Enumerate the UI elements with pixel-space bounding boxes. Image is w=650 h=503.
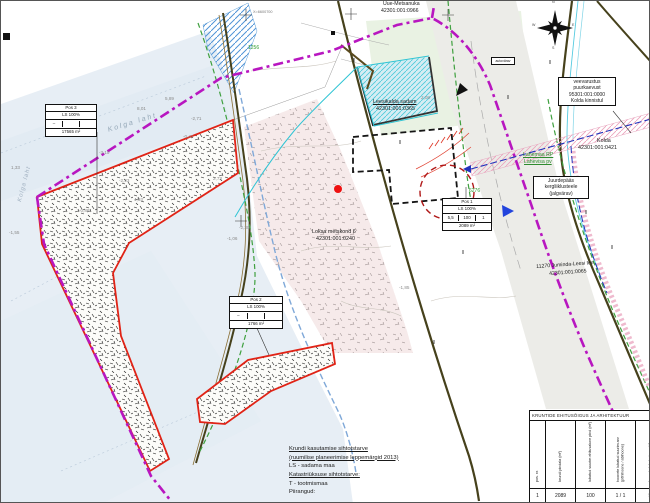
label-veevarustus: veevarustus puurkaevust 95301:001:0000 K… — [558, 77, 616, 106]
plot-info-cell: 17565 m² — [46, 128, 96, 135]
label-autovarav-text: autovärav — [493, 59, 513, 63]
plot-info-cell: LS 100% — [443, 205, 491, 212]
plot-info-cell: – — [46, 121, 62, 127]
table-cell: 2089 — [546, 489, 576, 503]
plot-info-cell — [62, 121, 79, 127]
plot-info-box: Pos 1LS 100%5,510012089 m² — [442, 198, 492, 231]
plot-info-box: Pos 2LS 100%–1766 m² — [229, 296, 283, 329]
label-autovarav: autovärav — [491, 57, 515, 65]
plot-info-cell — [264, 313, 282, 319]
plot-info-cell: 5,51001 — [443, 213, 491, 222]
plot-info-cell: 5,5 — [443, 215, 458, 221]
plot-info-cell: – — [230, 313, 247, 319]
plot-info-cell: – — [230, 311, 282, 320]
legend-line: LS - sadama maa — [289, 462, 399, 471]
legend-line: Krundi kasutamise sihtotstarve — [289, 445, 399, 454]
legend-line: Katastriüksuse sihtotstarve: — [289, 471, 399, 480]
plot-info-cell: LS 100% — [46, 111, 96, 118]
table-column-header: lubatud suurim ehitusalune pind (m²) — [576, 421, 606, 489]
detail-plan-map: Uue-Metsanuka42301:001:0966Leesikalda sa… — [0, 0, 650, 503]
plot-info-cell: – — [46, 119, 96, 128]
plot-info-cell: 1766 m² — [230, 320, 282, 327]
point-marker — [334, 185, 342, 193]
plot-info-cell: 2089 m² — [443, 222, 491, 229]
legend-line: Piirangud: — [289, 488, 399, 497]
table-cell: 100 — [576, 489, 606, 503]
table-column-header: pos. nr. — [530, 421, 546, 489]
label-line: (jalgvärav) — [535, 191, 587, 197]
table-grid: pos. nr.krundi pindala (m²)lubatud suuri… — [529, 420, 650, 503]
plot-info-cell — [247, 313, 265, 319]
table-row: 120891001 / 15,5 — [530, 489, 650, 503]
label-line: Kolda kinnistul — [560, 98, 614, 104]
legend-block: Krundi kasutamise sihtotstarve(ruumilise… — [289, 445, 399, 497]
legend-line: (ruumilise planeerimise leppemärgid 2013… — [289, 454, 399, 463]
table-cell: 1 / 1 — [606, 489, 636, 503]
plot-info-cell: LS 100% — [230, 303, 282, 310]
table-column-header: krundi pindala (m²) — [546, 421, 576, 489]
table-title: KRUNTIDE EHITUSÕIGUS JA ARHITEKTUUR — [529, 410, 650, 420]
plot-info-cell: 100 — [458, 215, 474, 221]
plot-info-cell: 1 — [475, 215, 491, 221]
building-rights-table: KRUNTIDE EHITUSÕIGUS JA ARHITEKTUUR pos.… — [529, 410, 650, 503]
table-column-header: hoonete lubatud suurim arv (põhihoone / … — [606, 421, 636, 489]
table-column-header: hoonete lubatud max kõrgus maapinnast (m… — [636, 421, 650, 489]
table-cell: 5,5 — [636, 489, 650, 503]
legend-line: T - tootmismaa — [289, 480, 399, 489]
label-juurdepaas: Juurdepääs kergliiklusteele (jalgvärav) — [533, 176, 589, 199]
table-cell: 1 — [530, 489, 546, 503]
plot-info-box: Pos 3LS 100%–17565 m² — [45, 104, 97, 137]
plot-info-cell — [79, 121, 96, 127]
